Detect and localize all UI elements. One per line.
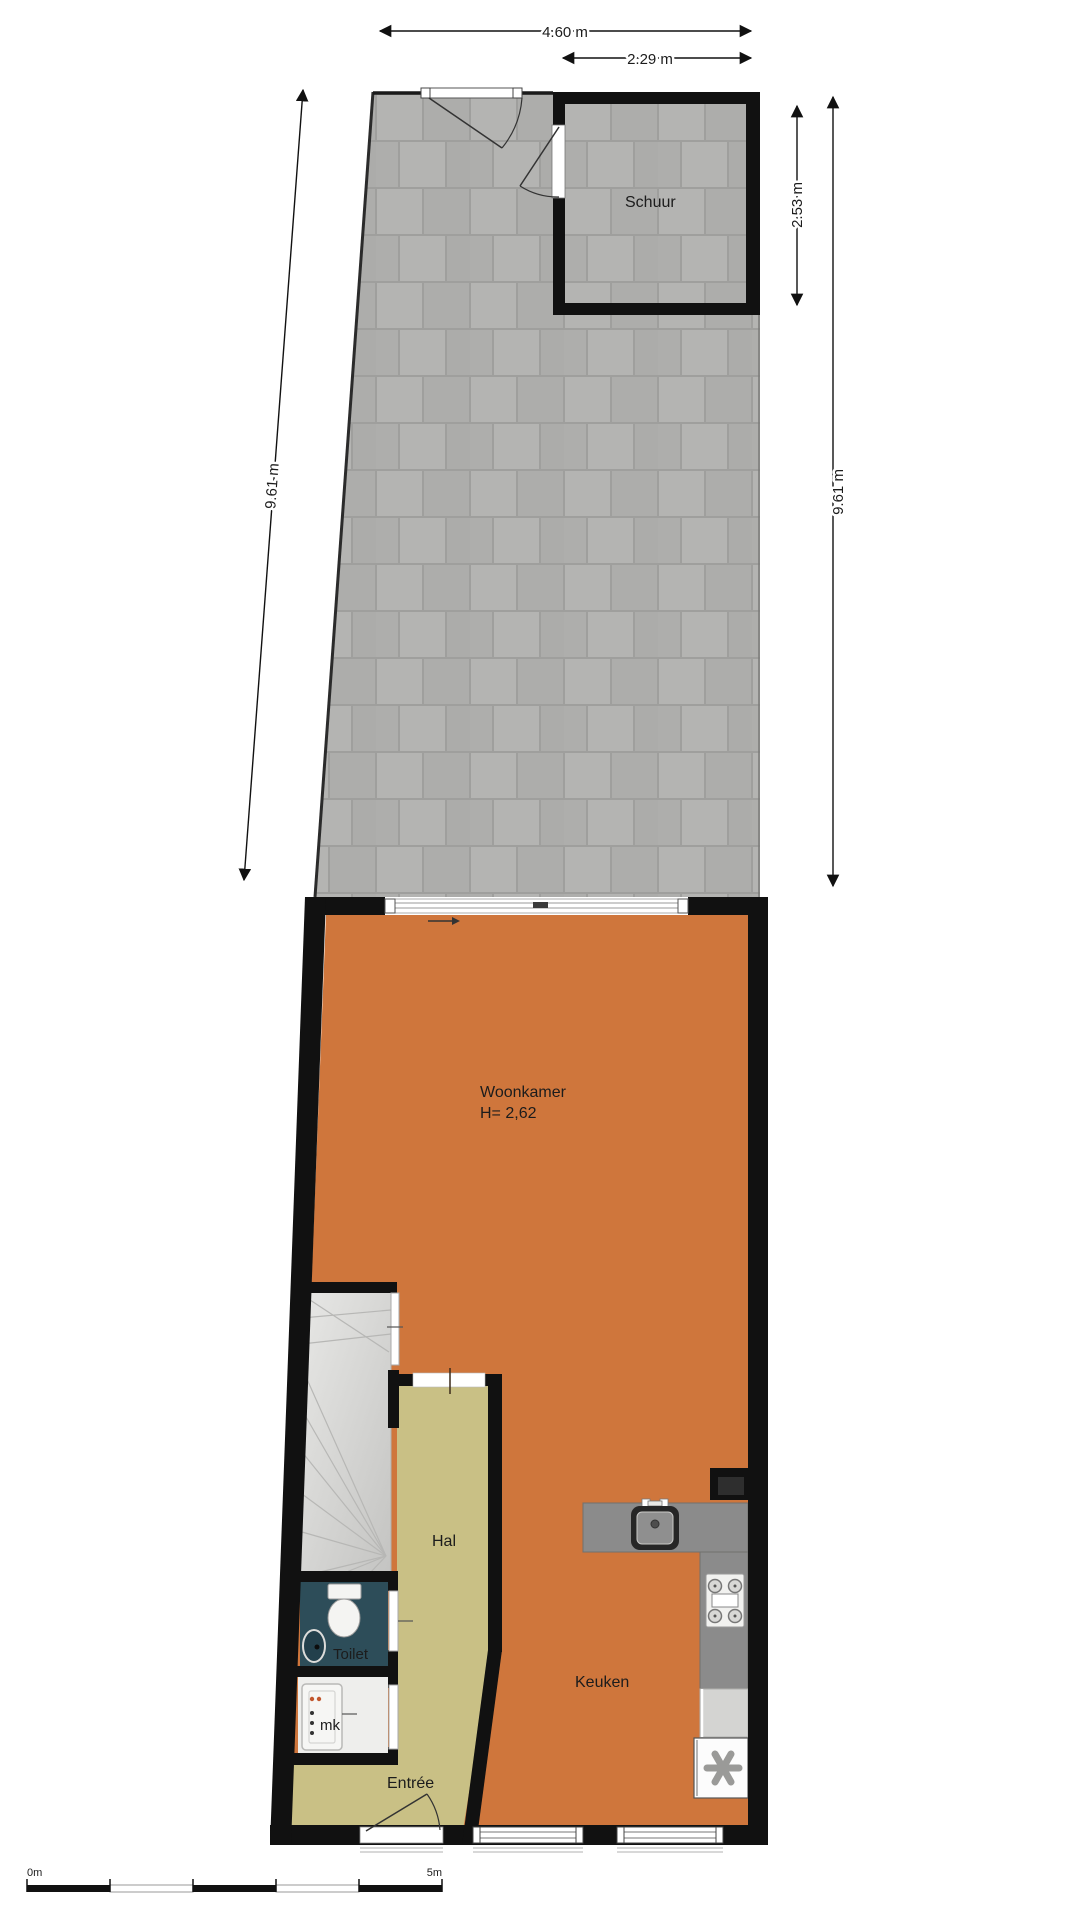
sliding-door-handle — [533, 902, 548, 908]
dimension-garden-width: 4.60 m — [542, 24, 588, 41]
toilet-bowl — [328, 1599, 360, 1637]
room-label-woonkamer-height: H= 2,62 — [480, 1105, 537, 1122]
staircase — [300, 1292, 391, 1573]
room-label-mk: mk — [320, 1717, 340, 1734]
floor-plan-page: Schuur — [0, 0, 1080, 1920]
front-window-right — [617, 1827, 723, 1843]
kitchen-sink — [631, 1499, 679, 1550]
room-label-woonkamer: Woonkamer — [480, 1084, 567, 1101]
dimension-schuur-width: 2.29 m — [627, 51, 673, 68]
scale-bar-start-label: 0m — [27, 1867, 42, 1879]
garden-area — [315, 92, 760, 897]
kitchen-wall-niche — [718, 1477, 744, 1495]
dimension-garden-depth-right: 9.61 m — [830, 469, 847, 515]
dimension-schuur-height: 2.53 m — [789, 182, 806, 228]
room-label-keuken: Keuken — [575, 1674, 629, 1691]
kitchen-appliance — [694, 1738, 748, 1798]
dimension-garden-depth-left: 9.61 m — [262, 463, 282, 510]
room-label-hal: Hal — [432, 1533, 456, 1550]
meter-cupboard-door — [389, 1685, 398, 1749]
floor-plan-drawing: Schuur — [0, 0, 1080, 1920]
room-label-schuur: Schuur — [625, 194, 676, 211]
scale-bar-end-label: 5m — [427, 1867, 442, 1879]
sliding-door — [385, 899, 688, 913]
front-window-left — [473, 1827, 583, 1843]
kitchen-hob — [706, 1574, 744, 1627]
toilet-tank — [328, 1584, 361, 1599]
room-label-toilet: Toilet — [333, 1646, 369, 1663]
window-sills — [360, 1848, 723, 1852]
meter-cupboard — [298, 1677, 388, 1753]
room-label-entree: Entrée — [387, 1775, 434, 1792]
scale-bar: 0m 5m — [27, 1867, 442, 1892]
toilet-sink — [303, 1630, 325, 1662]
